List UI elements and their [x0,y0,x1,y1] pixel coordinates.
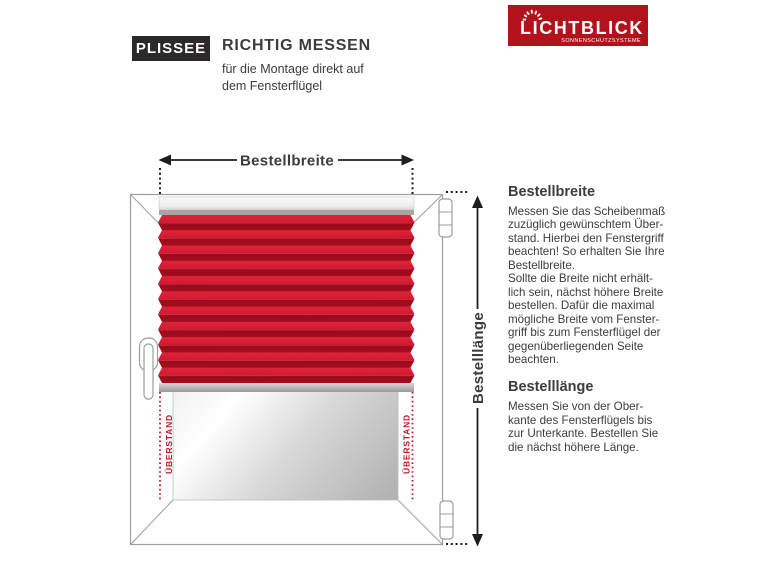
blind-pleats [158,215,415,383]
page: PLISSEE RICHTIG MESSEN für die Montage d… [0,0,772,579]
pleated-blind [158,197,415,392]
blind-bottom-rail [159,383,414,392]
hinge-top-icon [439,199,452,237]
width-measurement: Bestellbreite [159,153,415,196]
overhang-label-right: ÜBERSTAND [402,414,412,474]
width-measurement-label: Bestellbreite [240,153,334,170]
length-measurement: Bestelllänge [446,192,487,547]
arrowhead-down-icon [472,534,483,547]
window-measurement-diagram: ÜBERSTAND ÜBERSTAND Bestellbreite Bestel… [0,0,772,579]
arrowhead-left-icon [159,155,172,166]
length-measurement-label: Bestelllänge [470,312,487,404]
blind-top-rail [159,197,414,210]
arrowhead-up-icon [472,196,483,209]
hinge-bottom-icon [440,501,453,539]
overhang-label-left: ÜBERSTAND [164,414,174,474]
arrowhead-right-icon [402,155,415,166]
